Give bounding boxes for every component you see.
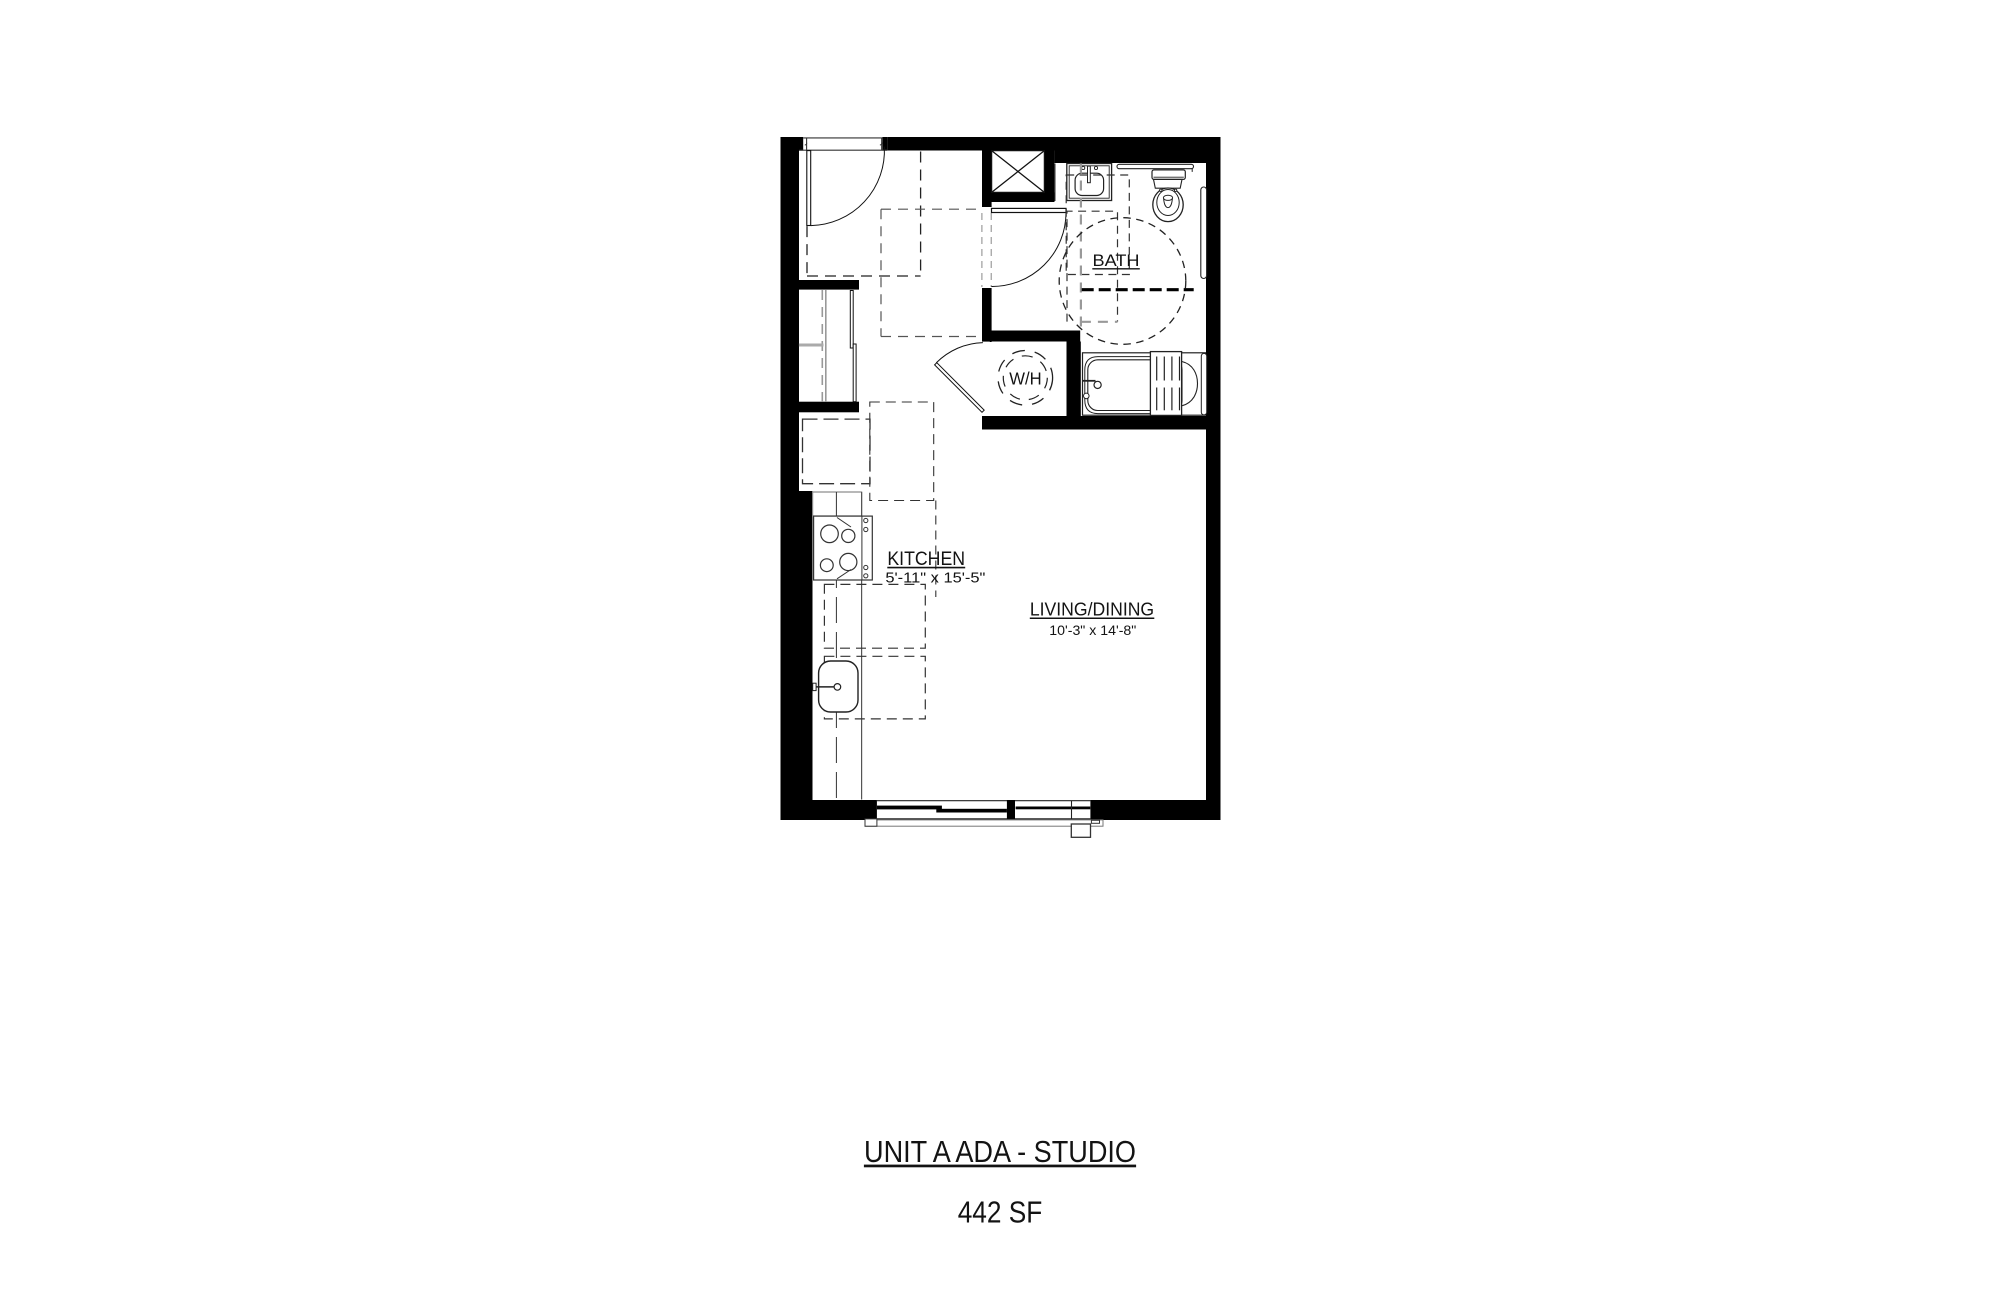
svg-text:UNIT A ADA - STUDIO: UNIT A ADA - STUDIO bbox=[864, 1134, 1136, 1169]
svg-text:LIVING/DINING: LIVING/DINING bbox=[1030, 599, 1154, 620]
svg-text:5'-11" x 15'-5": 5'-11" x 15'-5" bbox=[885, 570, 985, 586]
svg-text:BATH: BATH bbox=[1093, 252, 1140, 270]
svg-text:W/H: W/H bbox=[1009, 369, 1041, 389]
svg-text:442 SF: 442 SF bbox=[958, 1195, 1043, 1230]
svg-text:10'-3" x 14'-8": 10'-3" x 14'-8" bbox=[1049, 623, 1136, 639]
